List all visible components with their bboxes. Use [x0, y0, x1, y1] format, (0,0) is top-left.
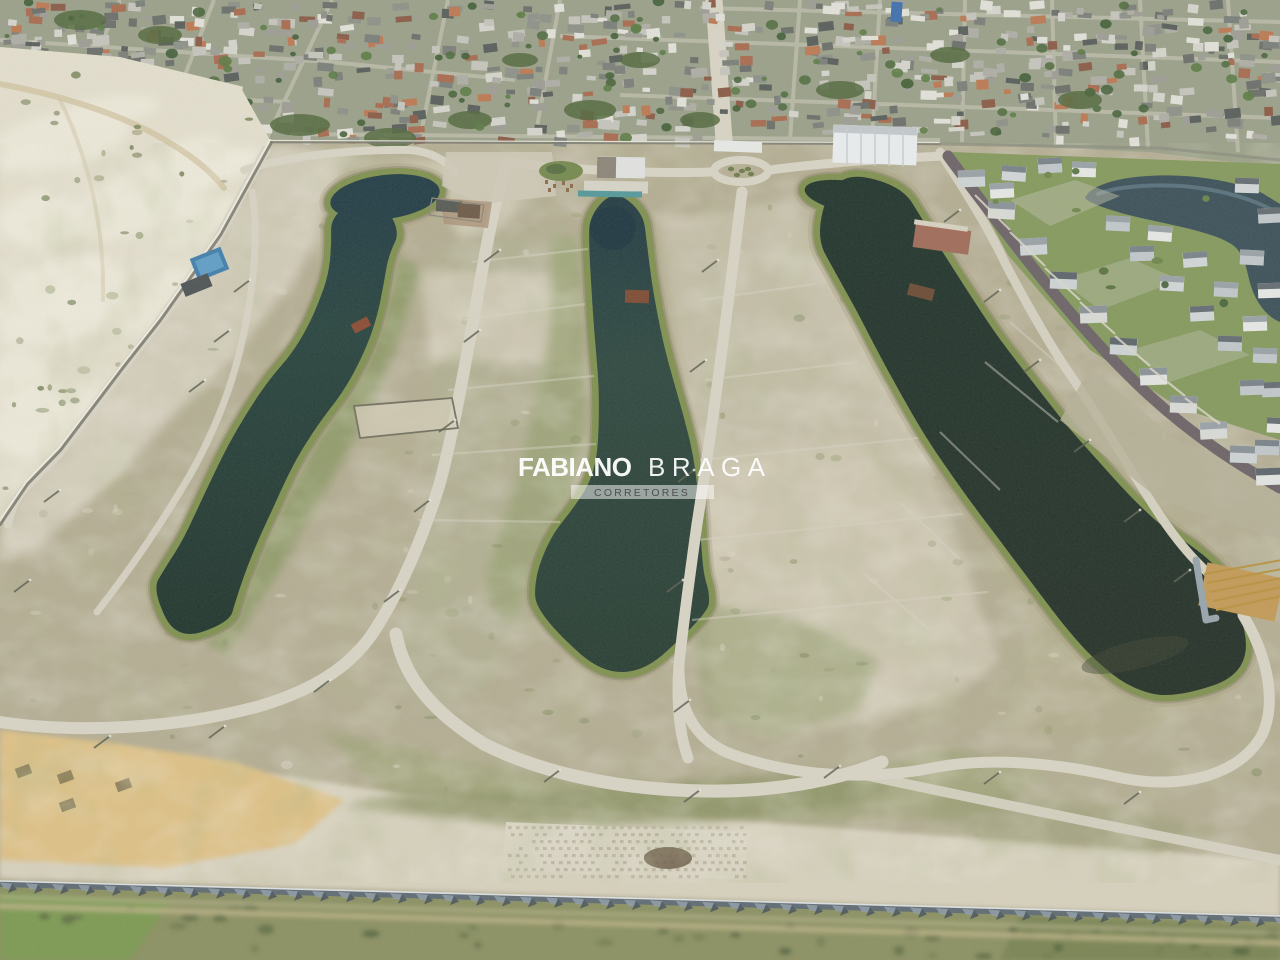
svg-text:CORRETORES: CORRETORES — [594, 487, 690, 499]
svg-text:FABIANO: FABIANO — [518, 452, 632, 482]
svg-text:BRAGA: BRAGA — [648, 452, 772, 482]
